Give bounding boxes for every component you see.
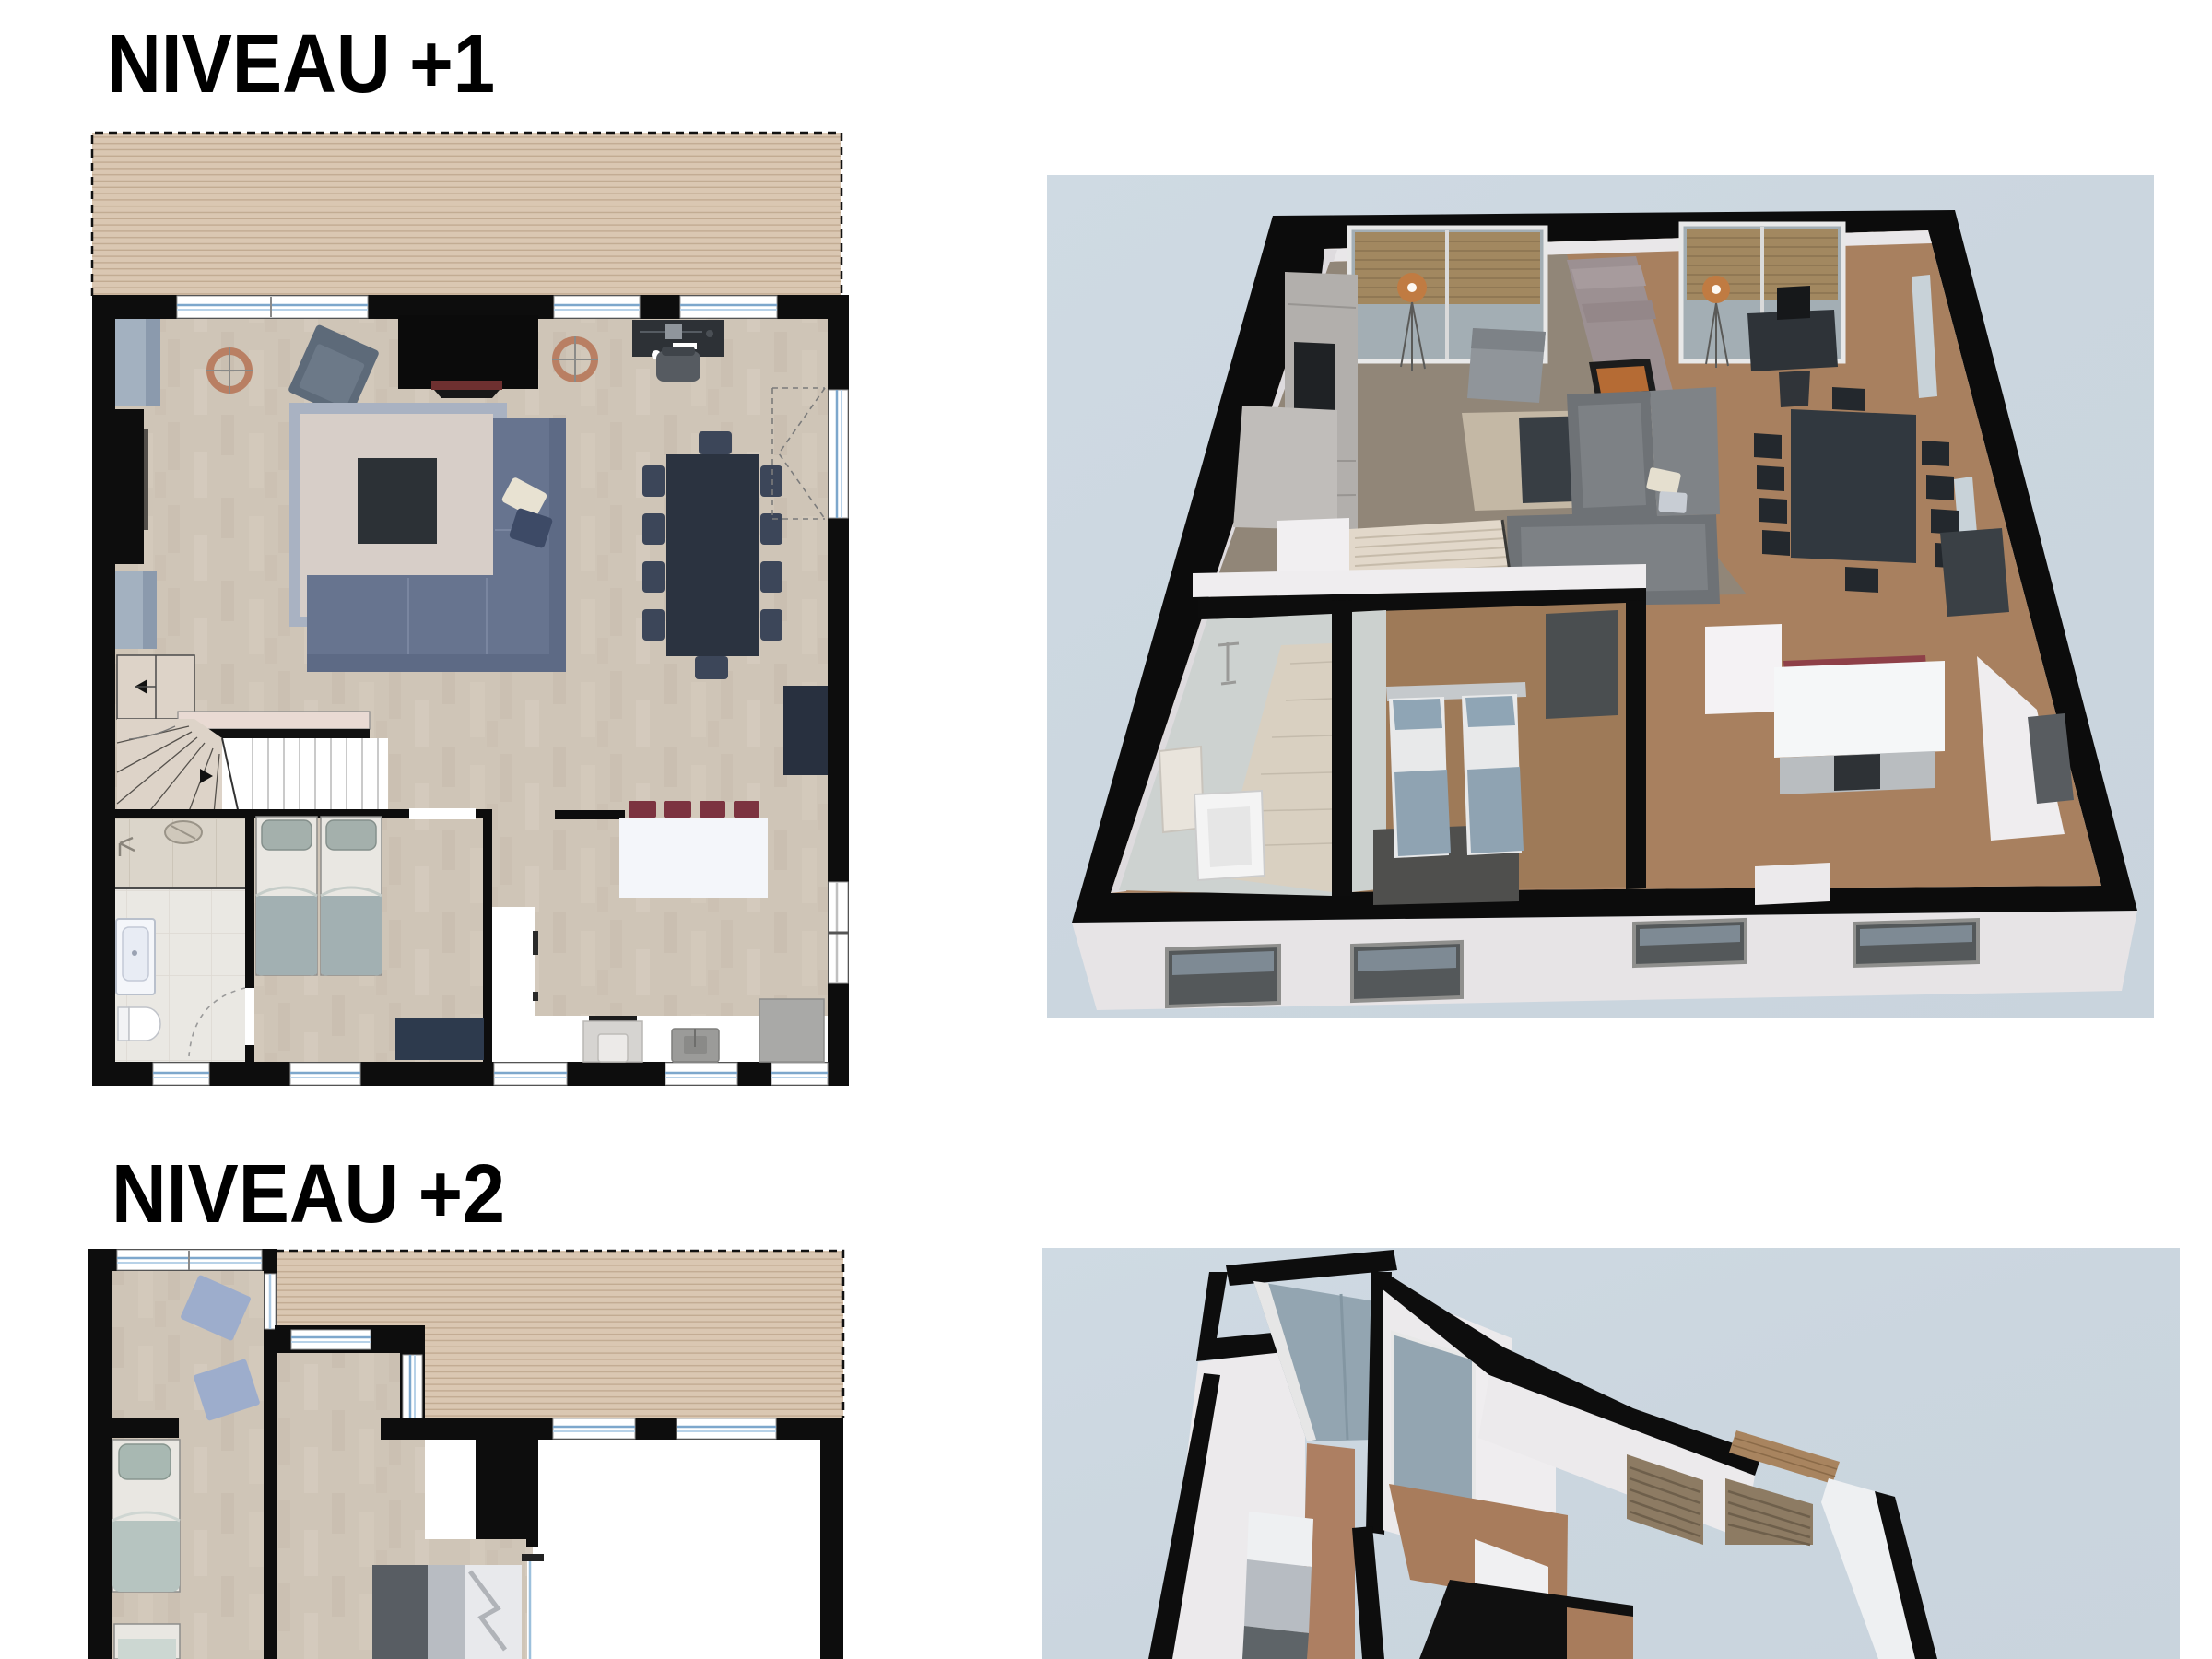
svg-text:NIVEAU +2: NIVEAU +2 bbox=[112, 1148, 505, 1241]
svg-text:NIVEAU +1: NIVEAU +1 bbox=[107, 18, 495, 111]
